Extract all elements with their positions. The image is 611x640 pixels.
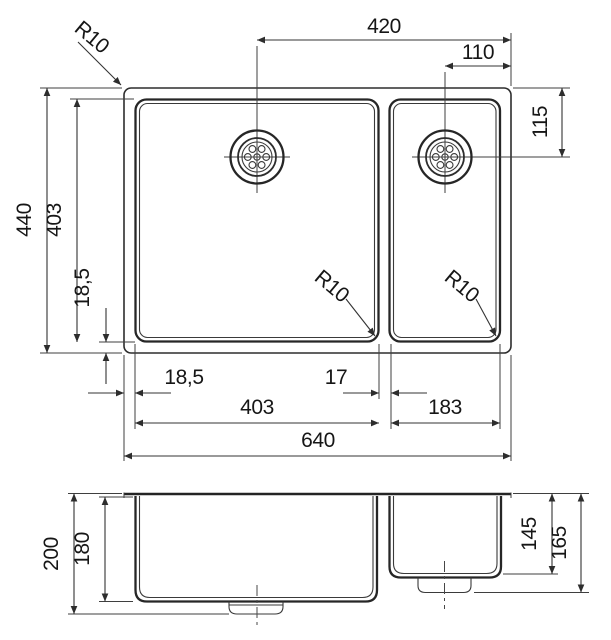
radius-leader-half-bowl [476,299,496,336]
dim-label-440: 440 [13,203,36,237]
sink-outer-rim [124,88,511,353]
dim-label-115: 115 [529,106,552,138]
front-half-bowl-inner-line [394,496,498,574]
dim-label-18-5-horizontal: 18,5 [164,366,203,389]
front-main-bowl-outline [136,496,378,602]
front-view: 200 180 145 165 [40,493,589,630]
dim-label-200: 200 [40,537,63,571]
drawing-svg: 420 110 115 440 403 18,5 R10 R10 R10 18,… [0,0,611,640]
dim-label-180: 180 [71,532,94,566]
front-main-bowl-inner-line [140,496,374,598]
dim-label-420: 420 [367,15,401,38]
radius-leader-main-bowl [346,299,375,336]
front-view-extension-lines [68,494,589,615]
dim-label-18-5-vertical: 18,5 [71,268,94,307]
dim-label-165: 165 [548,526,571,560]
dim-label-145: 145 [518,517,541,551]
top-view: 420 110 115 440 403 18,5 R10 R10 R10 18,… [13,15,570,461]
dim-label-640: 640 [301,429,335,452]
dim-label-183: 183 [428,396,462,419]
front-half-bowl-outline [390,496,502,578]
dim-label-403-horizontal: 403 [240,396,274,419]
dim-label-17: 17 [325,366,348,389]
sink-technical-drawing: 420 110 115 440 403 18,5 R10 R10 R10 18,… [0,0,611,640]
top-view-extension-lines [40,33,570,461]
dim-label-403-vertical: 403 [43,203,66,237]
front-view-dimension-lines [74,494,581,615]
radius-label-top-left: R10 [70,17,113,59]
front-left-drain-bump [229,602,283,615]
dim-label-110: 110 [462,41,494,64]
